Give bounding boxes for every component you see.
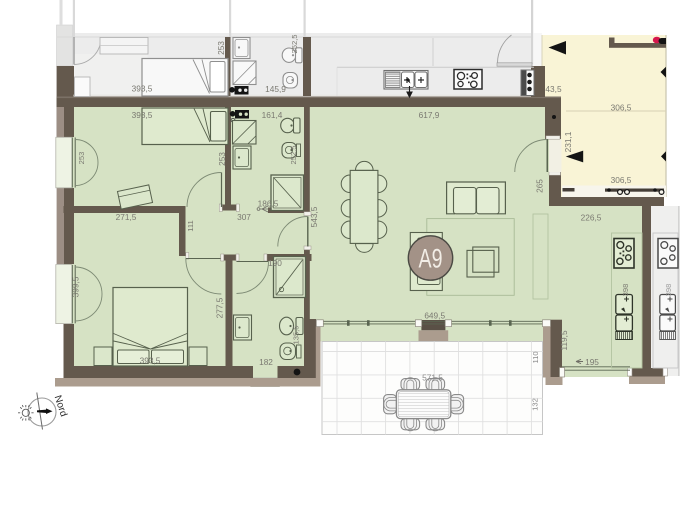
svg-text:398: 398 (664, 284, 673, 297)
svg-text:111: 111 (186, 220, 195, 232)
svg-text:393,5: 393,5 (140, 356, 161, 366)
svg-text:306,5: 306,5 (611, 175, 632, 185)
svg-text:195: 195 (585, 357, 599, 367)
svg-text:132: 132 (531, 398, 540, 411)
svg-text:398: 398 (621, 284, 630, 297)
svg-text:265: 265 (535, 179, 545, 193)
svg-text:135,5: 135,5 (292, 325, 301, 344)
svg-text:571,5: 571,5 (422, 373, 443, 383)
svg-text:306,5: 306,5 (611, 103, 632, 113)
svg-text:649,5: 649,5 (424, 310, 445, 320)
svg-text:252,5: 252,5 (289, 145, 298, 164)
svg-text:161,4: 161,4 (262, 110, 283, 120)
svg-text:543,5: 543,5 (309, 206, 319, 227)
svg-text:182: 182 (259, 357, 273, 367)
svg-text:186,5: 186,5 (258, 199, 279, 209)
svg-text:119,5: 119,5 (559, 330, 569, 351)
svg-text:190: 190 (268, 258, 282, 268)
svg-text:A9: A9 (419, 244, 443, 274)
svg-text:253: 253 (77, 152, 86, 165)
svg-text:399,5: 399,5 (71, 276, 81, 297)
svg-text:277,5: 277,5 (215, 297, 225, 318)
svg-text:43,5: 43,5 (545, 84, 562, 94)
svg-text:231,1: 231,1 (563, 131, 573, 152)
svg-text:393,5: 393,5 (132, 84, 153, 94)
svg-text:252,5: 252,5 (290, 34, 299, 53)
svg-text:271,5: 271,5 (116, 212, 137, 222)
svg-text:307: 307 (237, 212, 251, 222)
svg-text:617,9: 617,9 (419, 110, 440, 120)
svg-text:253: 253 (217, 152, 227, 166)
svg-text:110: 110 (531, 351, 540, 363)
svg-text:393,5: 393,5 (132, 110, 153, 120)
svg-text:253: 253 (216, 41, 226, 55)
svg-text:226,5: 226,5 (581, 213, 602, 223)
svg-text:145,9: 145,9 (265, 84, 286, 94)
